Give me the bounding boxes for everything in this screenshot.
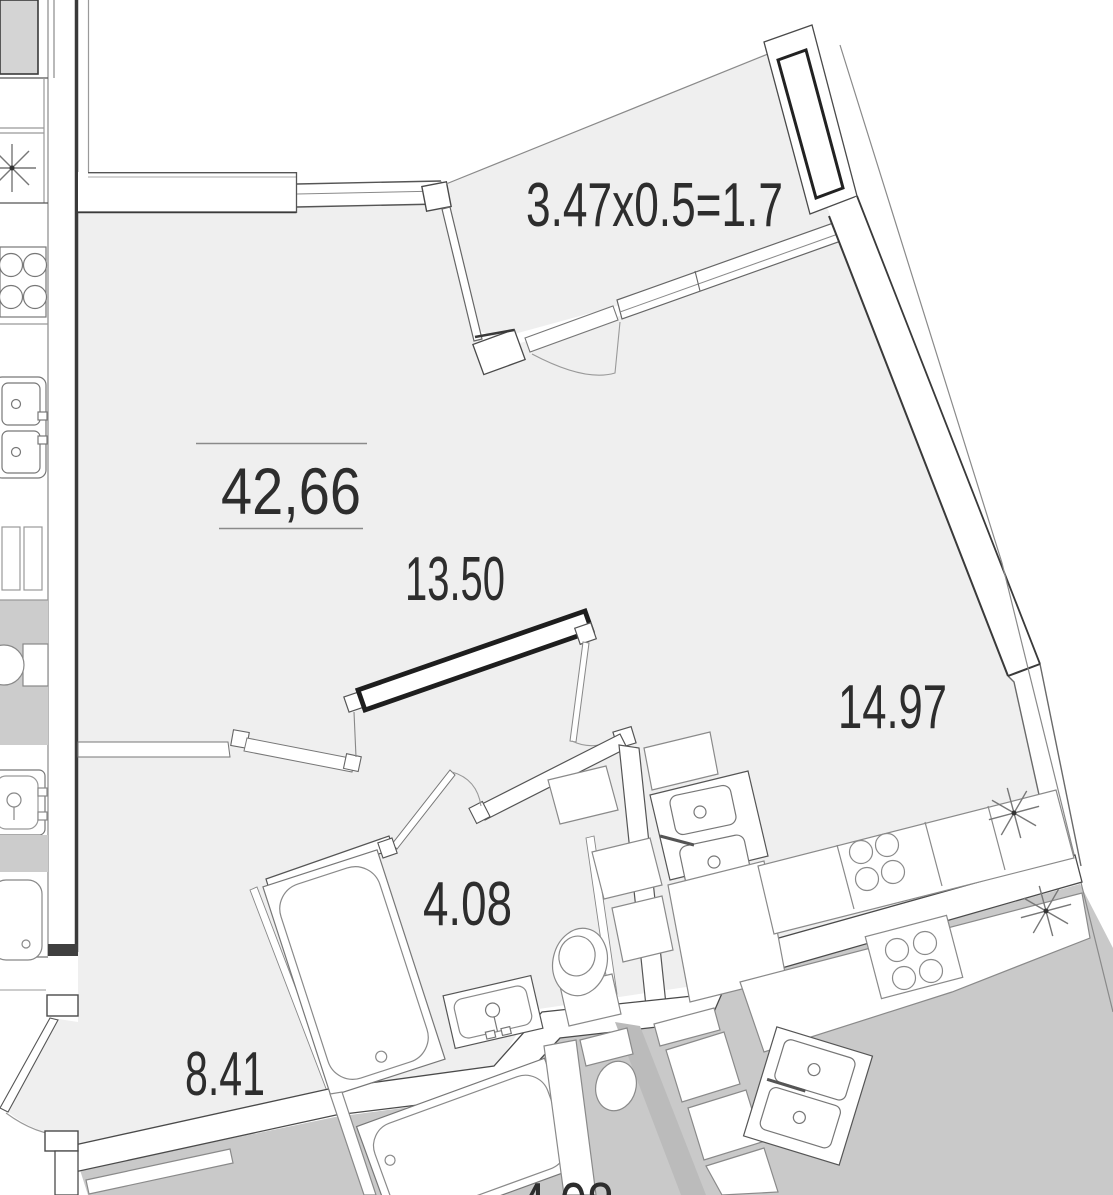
svg-text:3.47x0.5=1.7: 3.47x0.5=1.7 [526,171,783,240]
svg-text:42,66: 42,66 [221,454,361,528]
svg-text:4.08: 4.08 [519,1171,614,1195]
svg-text:14.97: 14.97 [838,673,947,742]
svg-text:4.08: 4.08 [423,870,512,939]
svg-text:13.50: 13.50 [405,545,505,614]
svg-text:8.41: 8.41 [185,1040,265,1109]
